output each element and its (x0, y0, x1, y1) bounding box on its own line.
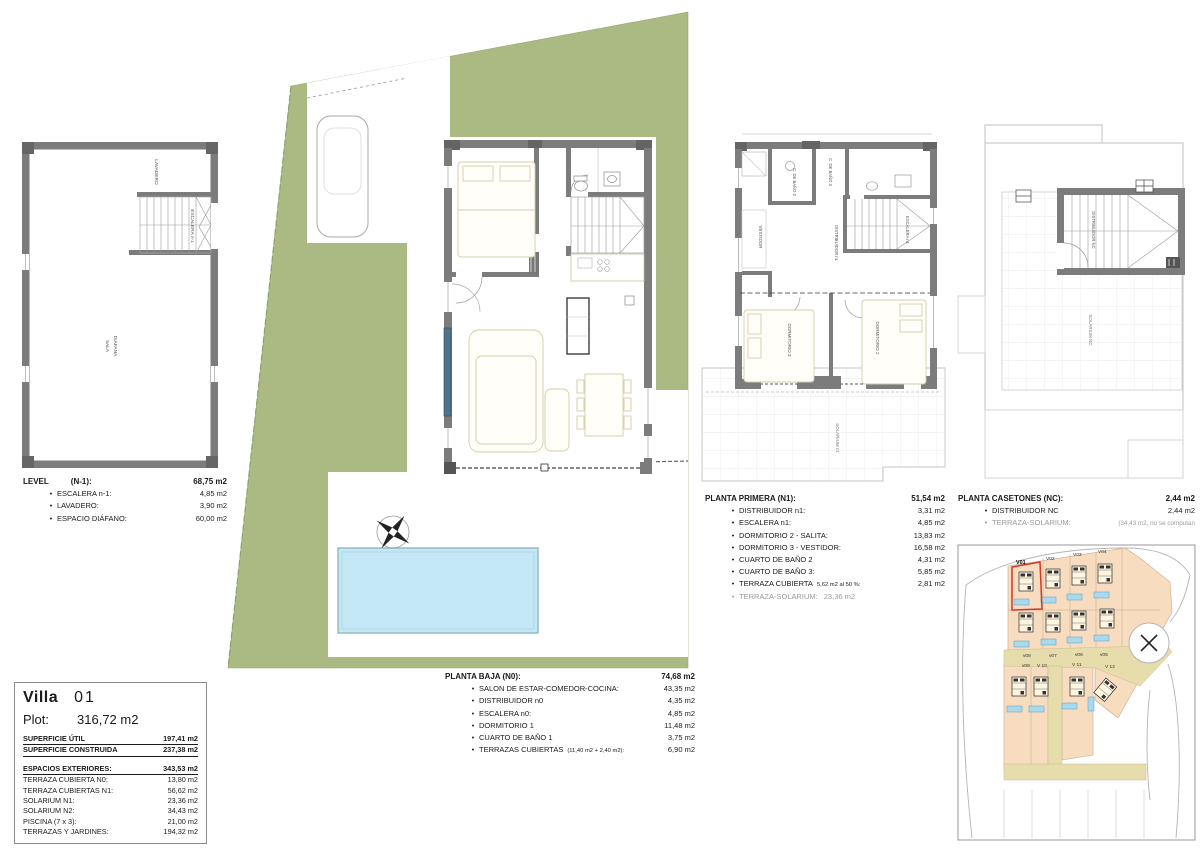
legend-paren: (N-1): (71, 477, 92, 486)
drawing-sheet: LAVADERO ESCALERA n-1 SALA DIÁFANA (0, 0, 1200, 848)
map-label-v09: v09 (1022, 663, 1030, 669)
dining-table (585, 374, 623, 436)
legend-item: SALON DE ESTAR-COMEDOR-COCINA:43,35 m2 (445, 684, 695, 696)
superficie-util-row: SUPERFICIE ÚTIL197,41 m2 (23, 734, 198, 745)
room-label-escalera-n1: ESCALERA n1 (905, 216, 910, 245)
window-glass (444, 328, 451, 416)
room-label-solarium-n1: SOLARIUM n1 (835, 423, 840, 453)
espacios-exteriores-header: ESPACIOS EXTERIORES:343,53 m2 (23, 764, 198, 775)
room-label-vestidor: VESTIDOR (758, 225, 763, 249)
map-label-v07: v07 (1049, 653, 1057, 659)
kitchen-island (567, 298, 589, 354)
legend-level-n1: LEVEL (N-1): 68,75 m2 ESCALERA n-1:4,85 … (23, 477, 227, 526)
bullet-icon (467, 711, 479, 718)
room-label-sala-2: DIÁFANA (112, 336, 119, 357)
bullet-icon (467, 735, 479, 742)
room-label-bano3: C. DE BAÑO 3 (828, 158, 833, 186)
map-label-v12: V 12 (1105, 664, 1115, 670)
bullet-icon (727, 581, 739, 588)
plan-nc: DISTRIBUIDOR NC SOLARIUM NC (958, 125, 1185, 478)
ext-row: TERRAZA CUBIERTAS N1:56,62 m2 (23, 786, 198, 796)
legend-item: ESCALERA n-1:4,85 m2 (23, 489, 227, 501)
legend-item: TERRAZAS CUBIERTAS(11,40 m2 + 2,40 m2):6… (445, 745, 695, 757)
stair-n0 (571, 197, 644, 253)
plan-n-1: LAVADERO ESCALERA n-1 SALA DIÁFANA (22, 142, 218, 468)
ext-row: TERRAZAS Y JARDINES:194,32 m2 (23, 827, 198, 837)
bullet-icon (45, 491, 57, 498)
legend-item: DISTRIBUIDOR n04,35 m2 (445, 696, 695, 708)
legend-title-row: PLANTA CASETONES (NC): 2,44 m2 (958, 494, 1195, 506)
ext-row: TERRAZA CUBIERTA N0:13,80 m2 (23, 775, 198, 785)
map-label-v01: V01 (1016, 560, 1026, 566)
legend-title-row: LEVEL (N-1): 68,75 m2 (23, 477, 227, 489)
legend-total: 68,75 m2 (193, 477, 227, 486)
map-label-v06: v06 (1075, 652, 1083, 658)
room-label-bano2: C. DE BAÑO 2 (792, 168, 797, 196)
plan-n1: VESTIDOR C. DE BAÑO 2 C. DE BAÑO 3 DISTR… (700, 134, 946, 482)
map-label-v08: v08 (1023, 653, 1031, 659)
legend-item: CUARTO DE BAÑO 13,75 m2 (445, 733, 695, 745)
villa-number: 01 (74, 689, 96, 706)
legend-title: LEVEL (23, 477, 49, 486)
room-label-escalera-n-1: ESCALERA n-1 (189, 209, 195, 243)
legend-planta-baja: PLANTA BAJA (N0): 74,68 m2 SALON DE ESTA… (445, 672, 695, 757)
legend-item: DORMITORIO 2 - SALITA:13,83 m2 (705, 531, 945, 543)
map-label-v02: V02 (1046, 556, 1055, 562)
plan-n0 (440, 137, 656, 478)
bullet-icon (467, 723, 479, 730)
site-location-map: V01 V02 V03 V04 v05 v06 v07 v08 v09 V 10… (958, 545, 1195, 840)
map-label-v04: V04 (1098, 549, 1107, 555)
chaise (545, 389, 569, 451)
legend-item: ESCALERA n1:4,85 m2 (705, 518, 945, 530)
bullet-icon (727, 594, 739, 601)
legend-title-row: PLANTA PRIMERA (N1): 51,54 m2 (705, 494, 945, 506)
sofa (469, 330, 543, 452)
plot-size: Plot:316,72 m2 (23, 712, 198, 727)
swimming-pool (338, 548, 538, 633)
bullet-icon (727, 520, 739, 527)
legend-planta-primera: PLANTA PRIMERA (N1): 51,54 m2 DISTRIBUID… (705, 494, 945, 604)
legend-planta-casetones: PLANTA CASETONES (NC): 2,44 m2 DISTRIBUI… (958, 494, 1195, 531)
bullet-icon (45, 516, 57, 523)
bullet-icon (467, 747, 479, 754)
bullet-icon (727, 533, 739, 540)
legend-item: LAVADERO:3,90 m2 (23, 501, 227, 513)
superficie-construida-row: SUPERFICIE CONSTRUIDA237,38 m2 (23, 745, 198, 756)
bullet-icon (45, 503, 57, 510)
legend-title-row: PLANTA BAJA (N0): 74,68 m2 (445, 672, 695, 684)
room-label-distribuidor-n1: DISTRIBUIDOR n1 (834, 225, 839, 262)
legend-item: ESPACIO DIÁFANO:60,00 m2 (23, 514, 227, 526)
bullet-icon (467, 698, 479, 705)
bullet-icon (727, 508, 739, 515)
ext-row: SOLARIUM N2:34,43 m2 (23, 806, 198, 816)
legend-item: DISTRIBUIDOR n1:3,31 m2 (705, 506, 945, 518)
bullet-icon (727, 545, 739, 552)
bullet-icon (727, 557, 739, 564)
room-label-distribuidor-nc: DISTRIBUIDOR NC (1091, 211, 1096, 248)
room-label-dormitorio2: DORMITORIO 2 (875, 322, 880, 355)
ext-row: PISCINA (7 x 3):21,00 m2 (23, 817, 198, 827)
legend-item: ESCALERA n0:4,85 m2 (445, 709, 695, 721)
map-label-v05: v05 (1100, 652, 1108, 658)
legend-item: DORMITORIO 111,48 m2 (445, 721, 695, 733)
legend-item: CUARTO DE BAÑO 24,31 m2 (705, 555, 945, 567)
villa-info-panel: Villa01 Plot:316,72 m2 SUPERFICIE ÚTIL19… (14, 682, 207, 844)
legend-item: DISTRIBUIDOR NC2,44 m2 (958, 506, 1195, 518)
map-label-v03: V03 (1073, 552, 1082, 558)
map-label-v11: V 11 (1072, 662, 1082, 668)
bullet-icon (980, 520, 992, 527)
bullet-icon (467, 686, 479, 693)
room-label-dormitorio3: DORMITORIO 3 (787, 324, 792, 357)
room-label-sala-1: SALA (104, 340, 110, 353)
legend-item: TERRAZA CUBIERTA5,62 m2 al 50 %:2,81 m2 (705, 579, 945, 591)
map-label-v10: V 10 (1037, 663, 1047, 669)
room-label-lavadero: LAVADERO (153, 159, 159, 185)
legend-item-muted: TERRAZA-SOLARIUM:23,36 m2 (705, 592, 945, 604)
legend-item: DORMITORIO 3 - VESTIDOR:16,58 m2 (705, 543, 945, 555)
ext-row: SOLARIUM N1:23,36 m2 (23, 796, 198, 806)
bullet-icon (980, 508, 992, 515)
bullet-icon (727, 569, 739, 576)
legend-item-muted: TERRAZA-SOLARIUM:(34,43 m2, no se comput… (958, 518, 1195, 530)
villa-title: Villa01 (23, 689, 198, 707)
legend-item: CUARTO DE BAÑO 3:5,85 m2 (705, 567, 945, 579)
room-label-solarium-nc: SOLARIUM NC (1088, 314, 1093, 346)
